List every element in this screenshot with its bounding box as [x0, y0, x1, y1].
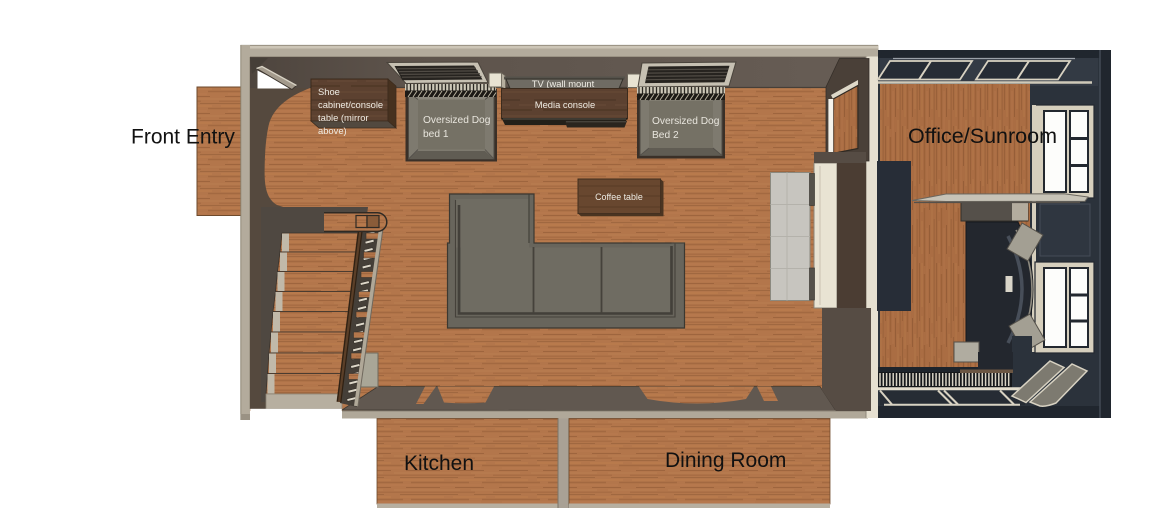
- svg-text:Shoe: Shoe: [318, 86, 340, 97]
- svg-text:Media console: Media console: [535, 99, 595, 110]
- svg-text:above): above): [318, 125, 347, 136]
- svg-text:Bed 2: Bed 2: [652, 130, 679, 141]
- svg-text:Office/Sunroom: Office/Sunroom: [908, 124, 1057, 148]
- svg-text:Oversized Dog: Oversized Dog: [652, 116, 720, 127]
- svg-text:bed 1: bed 1: [423, 129, 449, 140]
- svg-text:table (mirror: table (mirror: [318, 112, 369, 123]
- svg-text:Oversized Dog: Oversized Dog: [423, 115, 491, 126]
- svg-text:Dining Room: Dining Room: [665, 449, 786, 472]
- svg-text:cabinet/console: cabinet/console: [318, 99, 383, 110]
- svg-text:TV (wall mount: TV (wall mount: [532, 78, 595, 89]
- svg-text:Kitchen: Kitchen: [404, 452, 474, 475]
- svg-text:Coffee table: Coffee table: [595, 192, 643, 202]
- svg-text:Front Entry: Front Entry: [131, 126, 235, 149]
